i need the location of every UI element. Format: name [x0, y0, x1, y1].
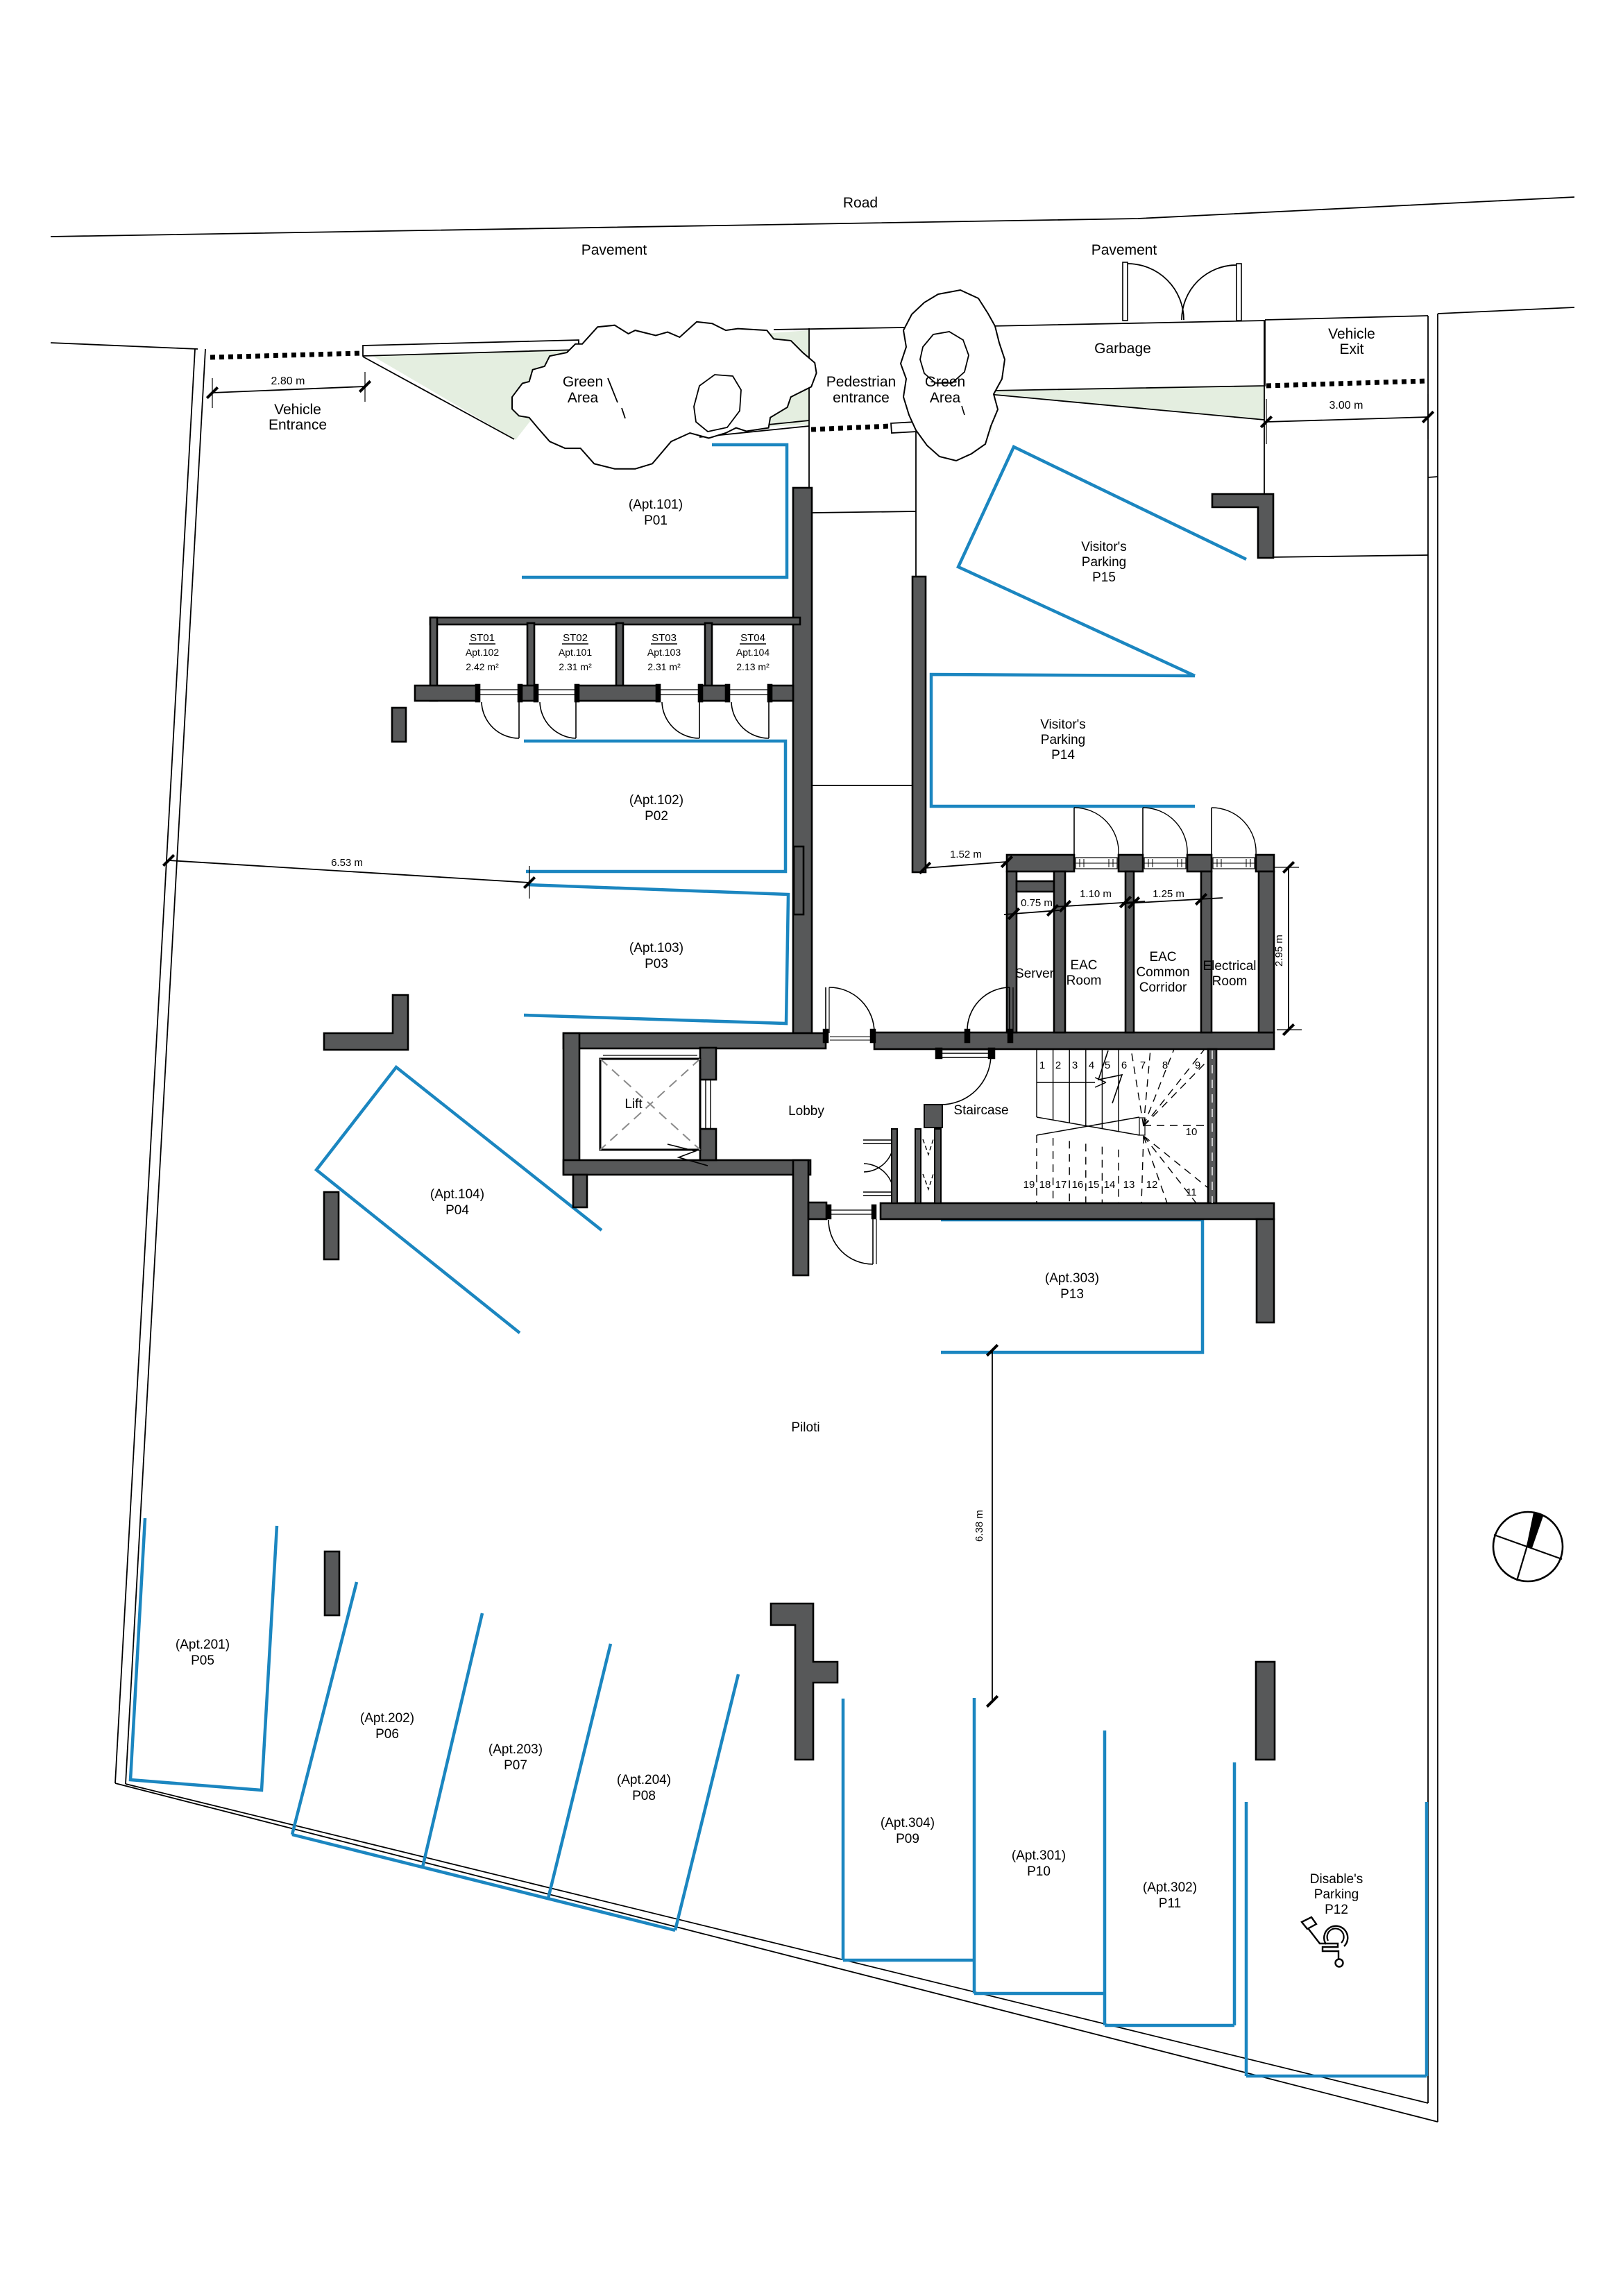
- svg-text:Parking: Parking: [1041, 733, 1085, 747]
- svg-text:(Apt.203): (Apt.203): [488, 1742, 543, 1757]
- svg-text:19: 19: [1023, 1179, 1035, 1191]
- svg-text:Parking: Parking: [1314, 1887, 1359, 1902]
- svg-text:2.31 m²: 2.31 m²: [647, 661, 681, 672]
- svg-text:Room: Room: [1212, 974, 1248, 989]
- svg-text:P08: P08: [632, 1789, 656, 1803]
- svg-text:Green: Green: [563, 374, 603, 390]
- svg-text:(Apt.303): (Apt.303): [1045, 1271, 1099, 1286]
- svg-text:ST01: ST01: [470, 632, 495, 644]
- svg-text:(Apt.202): (Apt.202): [360, 1711, 414, 1726]
- svg-text:ST02: ST02: [563, 632, 588, 644]
- svg-text:17: 17: [1055, 1179, 1067, 1191]
- svg-text:entrance: entrance: [833, 390, 890, 406]
- svg-text:3.00 m: 3.00 m: [1329, 400, 1363, 411]
- svg-text:Area: Area: [930, 390, 961, 406]
- svg-text:Corridor: Corridor: [1139, 980, 1187, 995]
- svg-text:P13: P13: [1060, 1287, 1084, 1302]
- svg-text:11: 11: [1186, 1187, 1197, 1198]
- svg-text:Visitor's: Visitor's: [1081, 540, 1127, 554]
- svg-text:3: 3: [1072, 1060, 1078, 1071]
- svg-text:Garbage: Garbage: [1094, 341, 1151, 357]
- svg-text:Road: Road: [843, 195, 878, 211]
- svg-text:P11: P11: [1159, 1896, 1181, 1911]
- svg-text:2.95 m: 2.95 m: [1273, 935, 1285, 967]
- svg-text:Pavement: Pavement: [1091, 242, 1157, 258]
- svg-text:1: 1: [1039, 1060, 1045, 1071]
- svg-text:P15: P15: [1092, 570, 1116, 585]
- svg-text:Room: Room: [1067, 973, 1102, 988]
- svg-text:Apt.101: Apt.101: [559, 647, 592, 658]
- svg-text:(Apt.204): (Apt.204): [617, 1773, 671, 1787]
- svg-text:P12: P12: [1325, 1903, 1348, 1917]
- svg-text:(Apt.301): (Apt.301): [1012, 1848, 1066, 1863]
- svg-text:2.31 m²: 2.31 m²: [559, 661, 592, 672]
- svg-text:6.53 m: 6.53 m: [331, 857, 363, 869]
- svg-text:Pedestrian: Pedestrian: [826, 374, 896, 390]
- svg-text:Exit: Exit: [1339, 341, 1363, 357]
- svg-text:Apt.103: Apt.103: [647, 647, 681, 658]
- svg-text:2: 2: [1055, 1060, 1061, 1071]
- svg-text:Area: Area: [568, 390, 599, 406]
- svg-text:7: 7: [1140, 1060, 1146, 1071]
- svg-text:6: 6: [1121, 1060, 1127, 1071]
- svg-text:P02: P02: [645, 809, 668, 824]
- svg-text:1.52 m: 1.52 m: [950, 849, 982, 860]
- svg-text:4: 4: [1089, 1060, 1094, 1071]
- svg-text:ST03: ST03: [652, 632, 677, 644]
- svg-text:Green: Green: [925, 374, 965, 390]
- svg-text:P05: P05: [191, 1653, 214, 1668]
- svg-text:5: 5: [1105, 1060, 1110, 1071]
- svg-text:Vehicle: Vehicle: [1328, 326, 1375, 342]
- svg-text:P03: P03: [645, 957, 668, 971]
- svg-text:(Apt.302): (Apt.302): [1143, 1880, 1197, 1895]
- svg-text:Server: Server: [1015, 967, 1055, 981]
- svg-text:P07: P07: [504, 1758, 527, 1773]
- svg-text:P09: P09: [896, 1832, 919, 1846]
- svg-text:2.80 m: 2.80 m: [271, 375, 305, 387]
- svg-text:Entrance: Entrance: [269, 417, 327, 433]
- svg-text:EAC: EAC: [1149, 950, 1176, 964]
- svg-text:P14: P14: [1051, 748, 1075, 763]
- svg-text:(Apt.304): (Apt.304): [881, 1816, 935, 1830]
- svg-text:Pavement: Pavement: [581, 242, 647, 258]
- svg-text:16: 16: [1072, 1179, 1084, 1191]
- svg-text:18: 18: [1039, 1179, 1051, 1191]
- svg-text:Common: Common: [1136, 965, 1189, 980]
- svg-text:8: 8: [1162, 1060, 1168, 1071]
- svg-text:1.25 m: 1.25 m: [1153, 888, 1184, 900]
- svg-text:14: 14: [1104, 1179, 1116, 1191]
- svg-text:9: 9: [1195, 1060, 1200, 1071]
- svg-text:2.13 m²: 2.13 m²: [736, 661, 770, 672]
- svg-text:(Apt.102): (Apt.102): [629, 793, 683, 808]
- svg-text:Vehicle: Vehicle: [274, 402, 321, 418]
- svg-text:Disable's: Disable's: [1310, 1872, 1363, 1887]
- svg-text:(Apt.101): (Apt.101): [629, 498, 683, 512]
- svg-text:(Apt.104): (Apt.104): [430, 1187, 484, 1202]
- svg-text:Visitor's: Visitor's: [1040, 717, 1086, 732]
- svg-text:Apt.102: Apt.102: [466, 647, 499, 658]
- svg-text:EAC: EAC: [1070, 958, 1097, 973]
- svg-text:Parking: Parking: [1082, 555, 1126, 570]
- svg-text:Electrical: Electrical: [1203, 959, 1256, 973]
- svg-text:(Apt.103): (Apt.103): [629, 941, 683, 955]
- svg-text:2.42 m²: 2.42 m²: [466, 661, 499, 672]
- svg-text:(Apt.201): (Apt.201): [176, 1638, 230, 1652]
- svg-text:1.10 m: 1.10 m: [1080, 888, 1112, 900]
- svg-text:Lift: Lift: [624, 1097, 643, 1112]
- svg-text:6.38 m: 6.38 m: [974, 1510, 985, 1542]
- svg-text:Piloti: Piloti: [791, 1420, 819, 1435]
- svg-text:0.75 m: 0.75 m: [1021, 897, 1053, 909]
- svg-text:ST04: ST04: [740, 632, 765, 644]
- svg-text:10: 10: [1186, 1126, 1198, 1138]
- svg-text:12: 12: [1146, 1179, 1158, 1191]
- svg-text:Staircase: Staircase: [953, 1103, 1008, 1118]
- svg-text:13: 13: [1123, 1179, 1135, 1191]
- svg-text:P06: P06: [375, 1727, 399, 1742]
- svg-text:P10: P10: [1027, 1864, 1051, 1879]
- svg-text:Lobby: Lobby: [788, 1104, 824, 1119]
- svg-text:P01: P01: [644, 513, 668, 528]
- svg-text:15: 15: [1088, 1179, 1100, 1191]
- svg-text:Apt.104: Apt.104: [736, 647, 770, 658]
- svg-text:P04: P04: [445, 1203, 469, 1218]
